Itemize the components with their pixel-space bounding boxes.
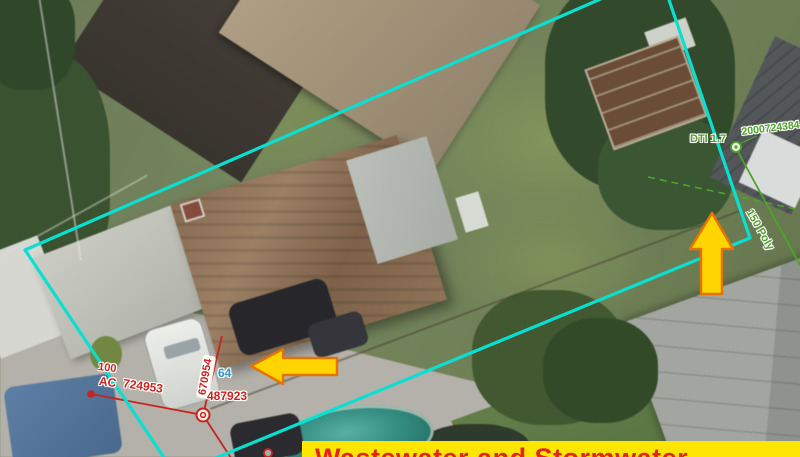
pipe-material-label: AC — [98, 375, 117, 389]
stormwater-node-label: DTI 1.7 — [690, 134, 726, 145]
gis-overlay — [0, 0, 800, 457]
boundary-line-right — [206, 0, 750, 457]
house-number-label: 64 — [218, 367, 231, 379]
wastewater-pipe-lateral — [203, 415, 231, 457]
asset-id-label: 487923 — [207, 390, 247, 402]
wastewater-manhole-icon — [264, 449, 272, 457]
title-banner: Wastewater and Stormwater — [302, 441, 800, 457]
stormwater-node-dot — [734, 145, 737, 148]
aerial-map-view[interactable]: 100 AC 724953 670954 487923 64 DTI 1.7 2… — [0, 0, 800, 457]
up-arrow-annotation — [690, 213, 733, 294]
stormwater-dashed-pipe — [648, 177, 795, 209]
arrow-annotations — [251, 213, 733, 384]
wastewater-pipe-100ac — [91, 394, 203, 415]
left-arrow-annotation — [251, 349, 337, 384]
banner-title: Wastewater and Stormwater — [315, 443, 800, 457]
wastewater-endpoint-dot — [87, 390, 95, 398]
wastewater-junction-node-icon — [197, 409, 210, 422]
